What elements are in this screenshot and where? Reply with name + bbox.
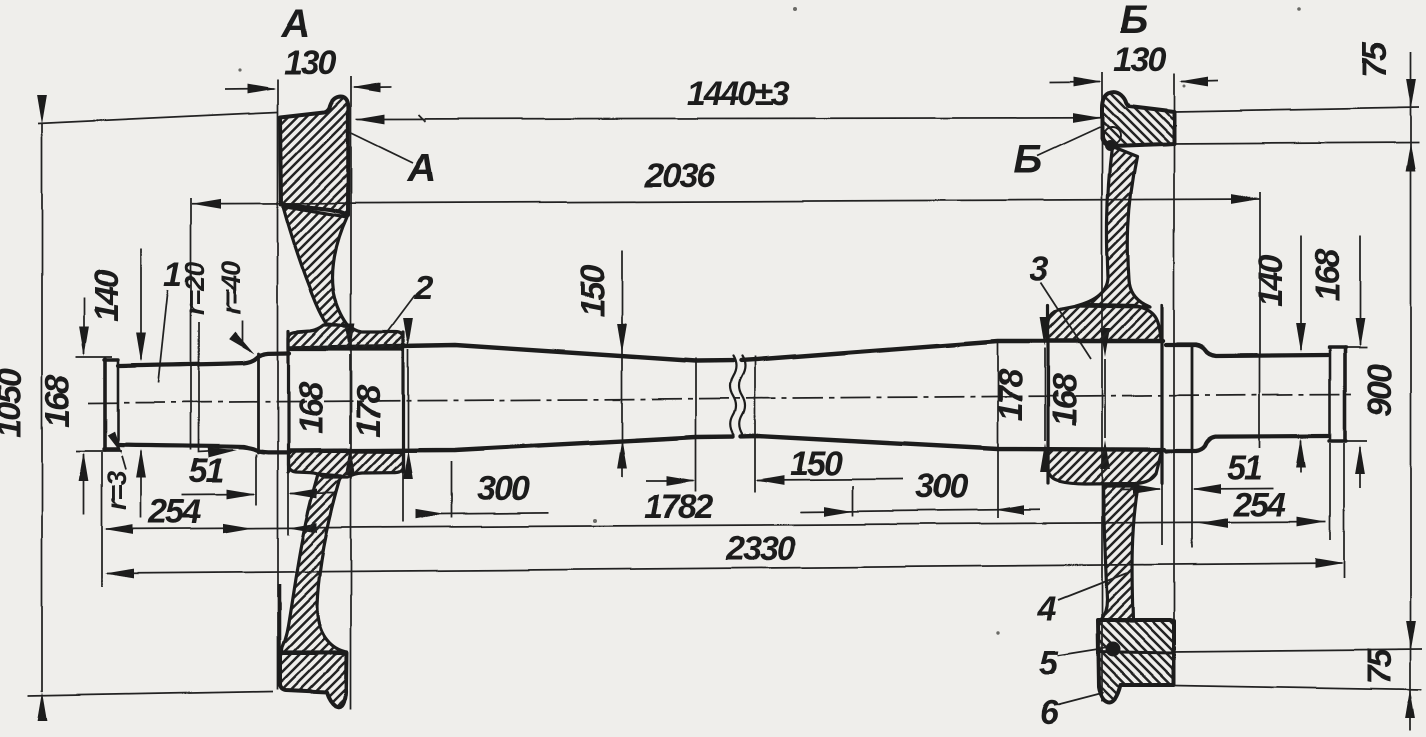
svg-text:3: 3 — [1030, 250, 1049, 288]
svg-text:1782: 1782 — [644, 488, 714, 526]
svg-text:А: А — [407, 146, 437, 190]
svg-text:168: 168 — [292, 382, 330, 435]
svg-text:300: 300 — [916, 468, 969, 506]
svg-text:51: 51 — [1227, 449, 1262, 487]
svg-text:r=40: r=40 — [216, 261, 246, 314]
svg-text:300: 300 — [477, 470, 530, 508]
svg-text:Б: Б — [1120, 0, 1148, 42]
svg-text:51: 51 — [189, 452, 224, 490]
svg-text:1050: 1050 — [0, 368, 29, 438]
svg-text:168: 168 — [39, 375, 77, 428]
svg-text:254: 254 — [148, 493, 202, 531]
svg-text:130: 130 — [284, 44, 337, 82]
svg-text:r=3: r=3 — [102, 471, 132, 510]
svg-text:178: 178 — [992, 369, 1030, 422]
svg-text:2: 2 — [414, 269, 434, 307]
svg-text:4: 4 — [1037, 590, 1057, 628]
svg-text:2330: 2330 — [725, 530, 796, 568]
svg-text:75: 75 — [1361, 648, 1399, 685]
svg-text:2036: 2036 — [644, 157, 716, 195]
svg-text:Б: Б — [1014, 138, 1042, 182]
svg-text:140: 140 — [1252, 255, 1290, 308]
svg-text:75: 75 — [1356, 41, 1394, 78]
svg-text:1: 1 — [164, 256, 182, 294]
svg-text:1440±3: 1440±3 — [686, 75, 789, 113]
svg-text:150: 150 — [790, 445, 843, 483]
svg-text:900: 900 — [1361, 364, 1399, 417]
svg-text:254: 254 — [1233, 486, 1287, 524]
svg-text:r=20: r=20 — [180, 262, 210, 315]
svg-text:130: 130 — [1114, 41, 1167, 79]
svg-text:168: 168 — [1309, 249, 1347, 302]
svg-text:140: 140 — [88, 270, 126, 323]
svg-text:168: 168 — [1046, 374, 1084, 427]
svg-text:150: 150 — [574, 265, 612, 318]
svg-text:А: А — [281, 2, 311, 46]
svg-text:178: 178 — [350, 385, 388, 438]
